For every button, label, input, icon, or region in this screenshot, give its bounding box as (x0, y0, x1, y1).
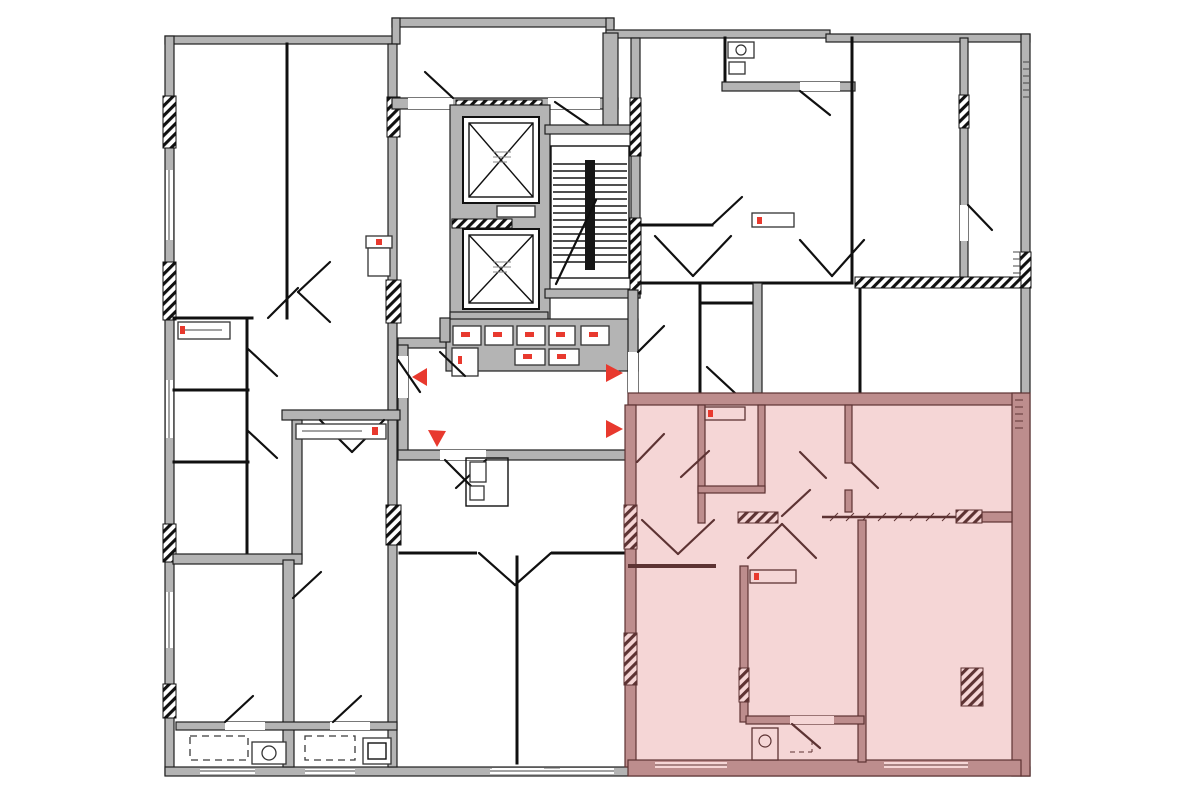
lobby-bottom-wall (398, 450, 634, 460)
highlighted-apartment[interactable] (628, 393, 1021, 767)
highlighted-apartment-overlay[interactable] (628, 393, 1021, 767)
elevator-2-icon (463, 229, 539, 309)
elevator-1-icon (463, 117, 539, 203)
column-pillar (961, 668, 983, 706)
floor-plan-viewer (0, 0, 1200, 800)
balcony-strip-wall (960, 38, 968, 278)
core-left-wall (388, 44, 397, 767)
floor-plan (0, 0, 1200, 800)
elevator-shaft (450, 105, 550, 320)
washing-machine-icon (752, 728, 778, 760)
